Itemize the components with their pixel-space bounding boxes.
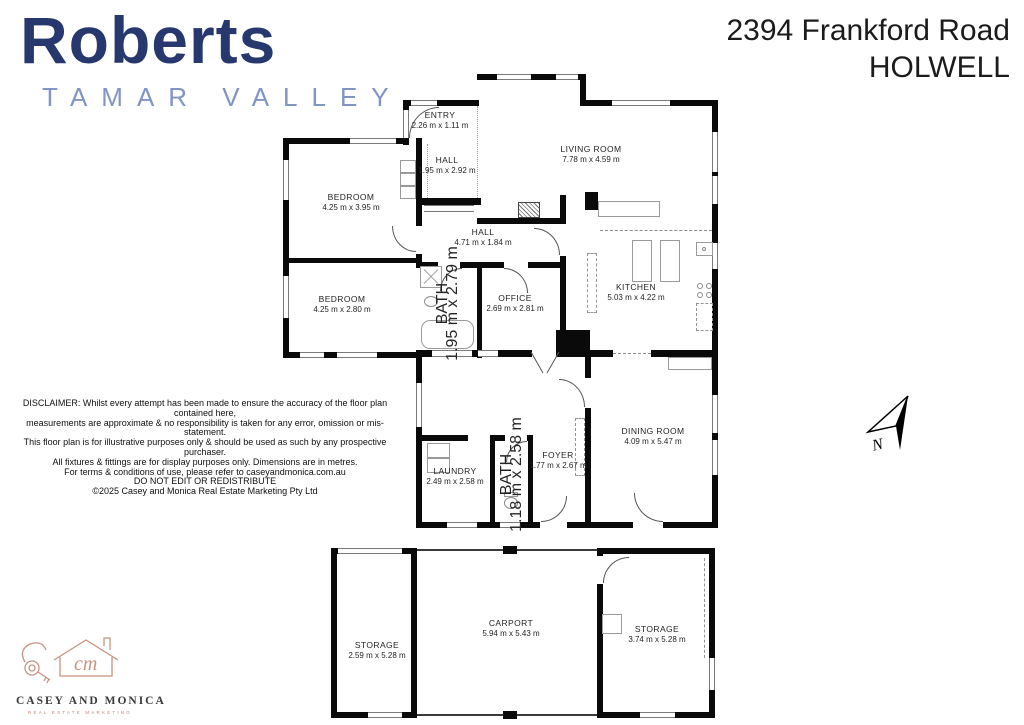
archway — [424, 205, 474, 212]
room-label-living: LIVING ROOM7.78 m x 4.59 m — [536, 145, 646, 164]
disclaimer: DISCLAIMER: Whilst every attempt has bee… — [8, 399, 402, 497]
carport-post — [503, 711, 517, 719]
window — [709, 658, 715, 690]
window — [640, 712, 675, 718]
door-arc — [504, 268, 528, 293]
window — [283, 160, 289, 200]
sideboard — [668, 357, 712, 370]
room-label-bedroom2: BEDROOM4.25 m x 2.80 m — [287, 295, 397, 314]
opening-line — [613, 353, 651, 355]
window — [556, 74, 578, 80]
wall — [528, 262, 566, 268]
window — [338, 548, 402, 554]
room-label-storage1: STORAGE2.59 m x 5.28 m — [322, 641, 432, 660]
disclaimer-line: This floor plan is for illustrative purp… — [8, 438, 402, 458]
floorplan: ENTRY2.26 m x 1.11 m HALL1.95 m x 2.92 m… — [0, 0, 1024, 725]
north-arrow-icon: N — [862, 392, 920, 456]
stove-burner — [697, 292, 703, 298]
wall — [498, 350, 532, 357]
wall — [651, 350, 716, 357]
disclaimer-line: DISCLAIMER: Whilst every attempt has bee… — [8, 399, 402, 419]
door-opening — [478, 350, 498, 357]
kitchen-island — [632, 240, 652, 282]
window — [447, 522, 477, 528]
window — [416, 383, 422, 427]
wall — [477, 218, 566, 224]
window — [337, 352, 377, 358]
washer — [427, 443, 450, 458]
casey-monica-logo: cm CASEY AND MONICA REAL ESTATE MARKETIN… — [16, 632, 144, 715]
wall — [597, 548, 715, 554]
stove-burner — [706, 292, 712, 298]
house-key-icon: cm — [16, 632, 144, 688]
room-label-dining: DINING ROOM4.09 m x 5.47 m — [598, 427, 708, 446]
room-label-bedroom1: BEDROOM4.25 m x 3.95 m — [296, 193, 406, 212]
casey-monica-name: CASEY AND MONICA — [16, 695, 144, 707]
window — [712, 440, 718, 475]
window — [300, 352, 324, 358]
window — [368, 712, 402, 718]
wall — [416, 138, 422, 226]
casey-monica-tagline: REAL ESTATE MARKETING — [16, 710, 144, 715]
kitchen-island — [660, 240, 680, 282]
door-arc — [541, 496, 567, 522]
window — [712, 395, 718, 433]
wall-stub — [585, 192, 598, 210]
floorplan-page: { "brand": {"name": "Roberts", "sub": "T… — [0, 0, 1024, 725]
door-arc — [392, 226, 416, 252]
wall — [585, 352, 591, 378]
room-label-carport: CARPORT5.94 m x 5.43 m — [456, 619, 566, 638]
disclaimer-line: measurements are approximate & no respon… — [8, 419, 402, 439]
sink-drain — [702, 247, 706, 251]
wall — [597, 548, 603, 556]
svg-text:N: N — [870, 435, 886, 454]
room-label-foyer: FOYER1.77 m x 2.67 m — [503, 451, 613, 470]
wall — [560, 195, 566, 218]
counter-line — [600, 230, 712, 232]
window — [612, 100, 670, 106]
north-arrow: N — [862, 392, 920, 461]
stove-burner — [706, 283, 712, 289]
window — [497, 74, 531, 80]
wall — [567, 522, 633, 528]
kitchen-bench — [598, 201, 660, 217]
room-label-kitchen: KITCHEN5.03 m x 4.22 m — [581, 283, 691, 302]
wall — [663, 522, 718, 528]
door-arc — [634, 493, 663, 522]
wall — [597, 584, 603, 718]
wall — [416, 435, 468, 441]
door-arc — [559, 379, 585, 407]
wall — [411, 548, 417, 718]
door-arc — [603, 557, 629, 583]
window — [411, 100, 437, 106]
wall — [460, 262, 504, 268]
carport-post — [503, 546, 517, 554]
room-label-office: OFFICE2.69 m x 2.81 m — [460, 294, 570, 313]
disclaimer-line: ©2025 Casey and Monica Real Estate Marke… — [8, 487, 402, 497]
room-label-storage2: STORAGE3.74 m x 5.28 m — [602, 625, 712, 644]
wood-heater — [518, 202, 540, 218]
svg-text:cm: cm — [74, 653, 97, 675]
window — [712, 176, 718, 204]
room-label-entry: ENTRY2.26 m x 1.11 m — [385, 111, 495, 130]
wall — [416, 198, 481, 205]
room-label-hall-upper: HALL1.95 m x 2.92 m — [392, 156, 502, 175]
window — [350, 138, 396, 144]
wall — [588, 350, 613, 357]
window — [712, 132, 718, 172]
wall — [288, 258, 416, 263]
wall — [331, 548, 337, 718]
room-label-hall: HALL4.71 m x 1.84 m — [428, 228, 538, 247]
cabinet — [696, 303, 713, 331]
stove-burner — [697, 283, 703, 289]
double-door — [529, 351, 561, 377]
